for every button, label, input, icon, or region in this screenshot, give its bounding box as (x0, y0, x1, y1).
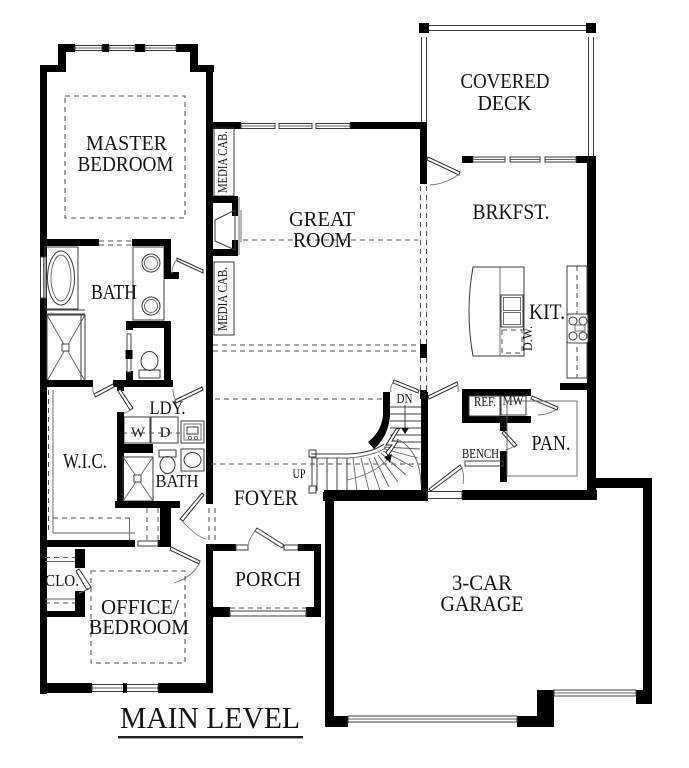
svg-text:UP: UP (293, 466, 306, 481)
svg-text:PORCH: PORCH (235, 567, 301, 591)
svg-text:COVERED: COVERED (461, 69, 550, 93)
svg-text:BEDROOM: BEDROOM (89, 615, 189, 639)
svg-text:KIT.: KIT. (529, 299, 565, 324)
svg-text:LDY.: LDY. (150, 398, 186, 419)
svg-text:PAN.: PAN. (532, 431, 571, 455)
svg-text:MW: MW (503, 394, 525, 409)
svg-text:D.W.: D.W. (521, 326, 536, 351)
svg-text:BENCH: BENCH (462, 447, 499, 462)
svg-text:BRKFST.: BRKFST. (473, 199, 550, 224)
svg-text:ROOM: ROOM (293, 228, 352, 252)
svg-text:FOYER: FOYER (234, 485, 298, 510)
svg-text:DN: DN (397, 392, 413, 407)
svg-text:BEDROOM: BEDROOM (78, 152, 174, 176)
svg-text:BATH: BATH (91, 280, 137, 304)
svg-text:REF.: REF. (474, 395, 496, 410)
svg-text:MAIN LEVEL: MAIN LEVEL (120, 701, 300, 735)
svg-text:GARAGE: GARAGE (441, 591, 524, 616)
svg-text:DECK: DECK (478, 91, 532, 115)
svg-text:CLO.: CLO. (45, 571, 79, 590)
svg-text:MEDIA CAB.: MEDIA CAB. (216, 131, 231, 193)
svg-text:BATH: BATH (156, 471, 199, 491)
svg-text:MEDIA CAB.: MEDIA CAB. (216, 267, 231, 331)
svg-text:W.I.C.: W.I.C. (63, 449, 107, 473)
